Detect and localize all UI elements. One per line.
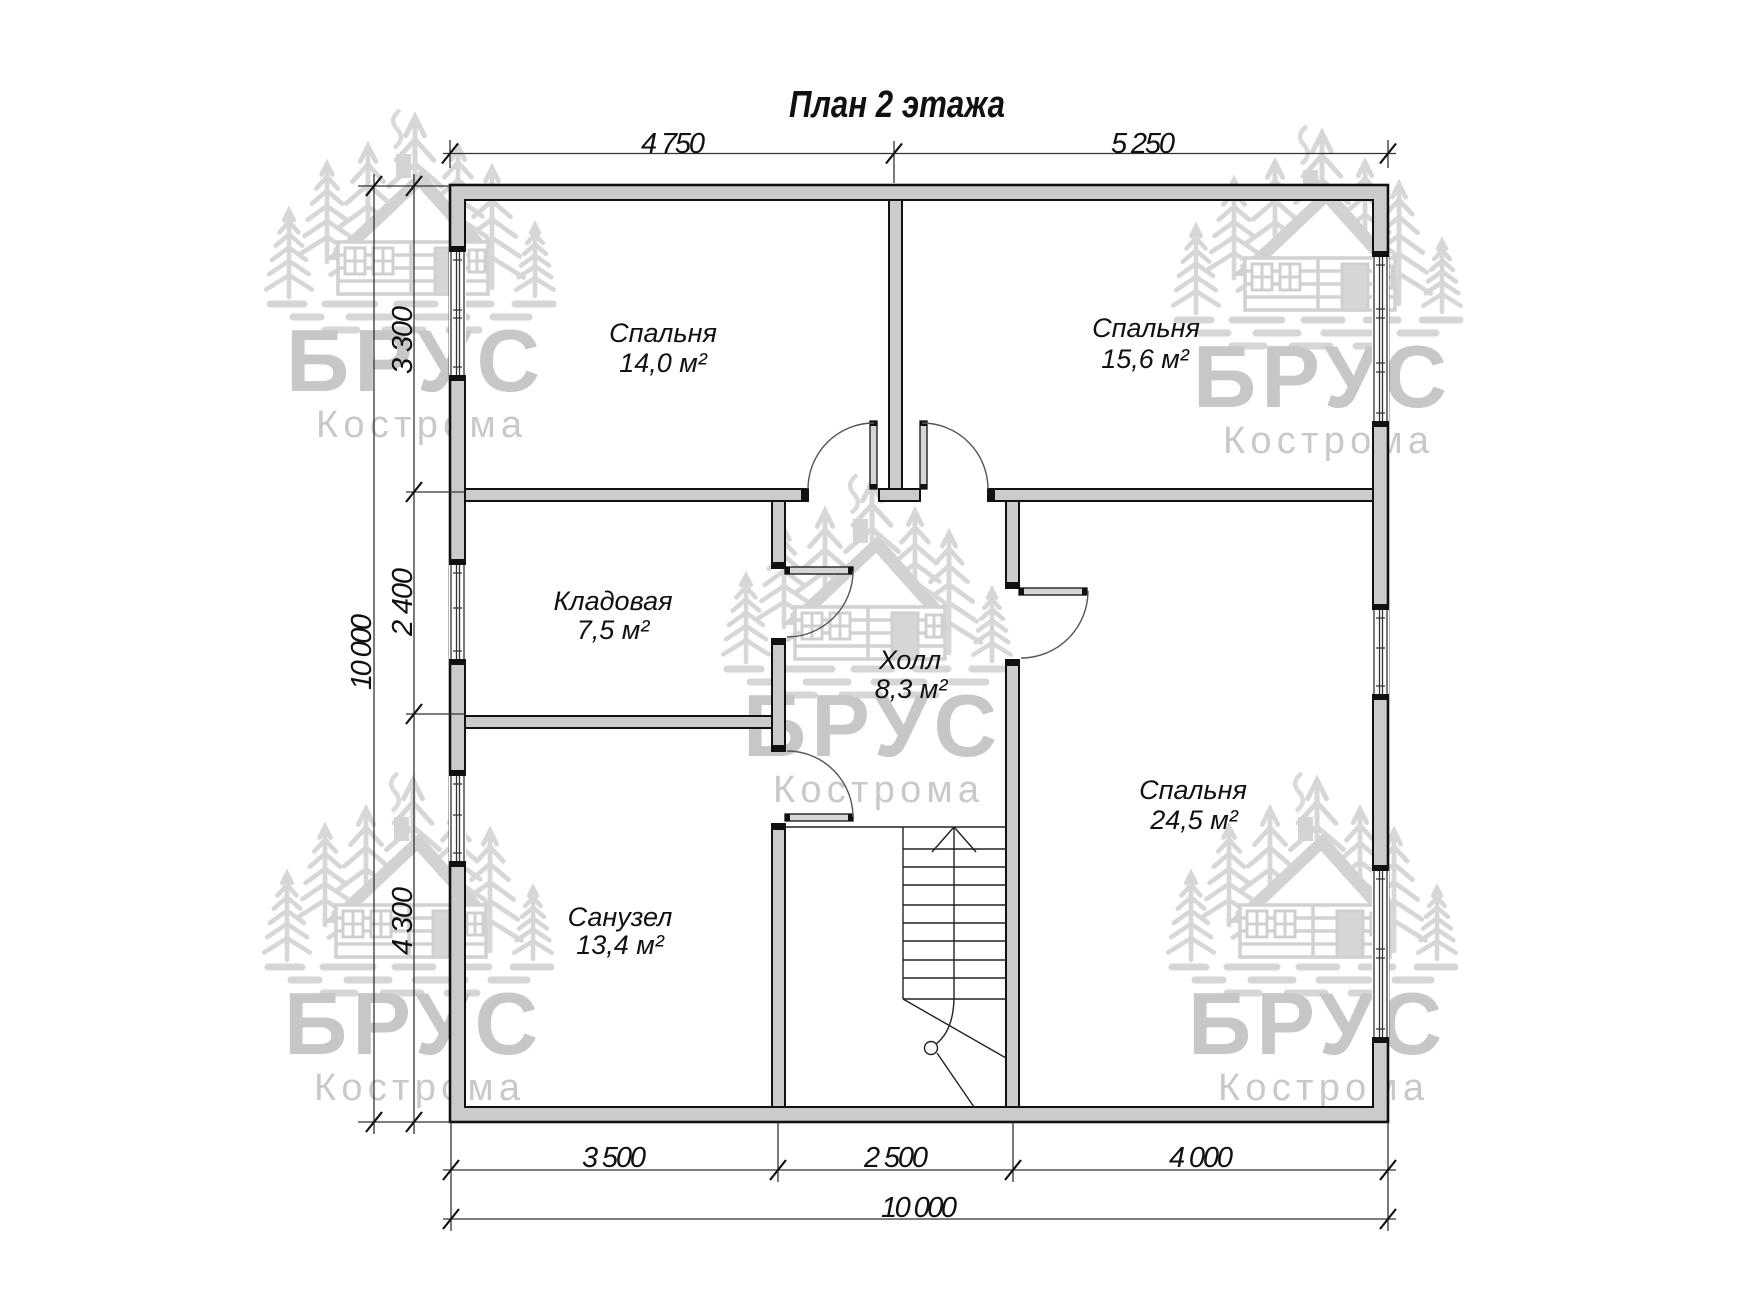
svg-text:5 250: 5 250 [1111,128,1175,160]
svg-text:3 500: 3 500 [582,1142,646,1174]
svg-text:4 300: 4 300 [387,887,419,955]
svg-text:План 2 этажа: План 2 этажа [789,84,1005,126]
svg-text:Спальня: Спальня [609,318,717,348]
svg-text:Спальня: Спальня [1139,775,1247,805]
svg-text:2 500: 2 500 [863,1142,928,1174]
svg-text:8,3 м²: 8,3 м² [875,674,949,704]
svg-text:Спальня: Спальня [1092,313,1200,343]
svg-text:2 400: 2 400 [387,568,419,637]
svg-text:15,6 м²: 15,6 м² [1101,344,1190,374]
svg-text:3 300: 3 300 [387,306,419,374]
svg-text:13,4 м²: 13,4 м² [576,930,665,960]
svg-text:Кладовая: Кладовая [553,586,672,616]
svg-text:10 000: 10 000 [881,1192,957,1224]
svg-text:Санузел: Санузел [568,902,673,932]
svg-text:4 750: 4 750 [641,128,705,160]
svg-text:Холл: Холл [878,645,941,675]
svg-text:14,0 м²: 14,0 м² [619,348,708,378]
svg-text:7,5 м²: 7,5 м² [577,615,651,645]
svg-text:10 000: 10 000 [346,614,378,690]
svg-text:4 000: 4 000 [1169,1142,1233,1174]
svg-text:24,5 м²: 24,5 м² [1149,805,1239,835]
